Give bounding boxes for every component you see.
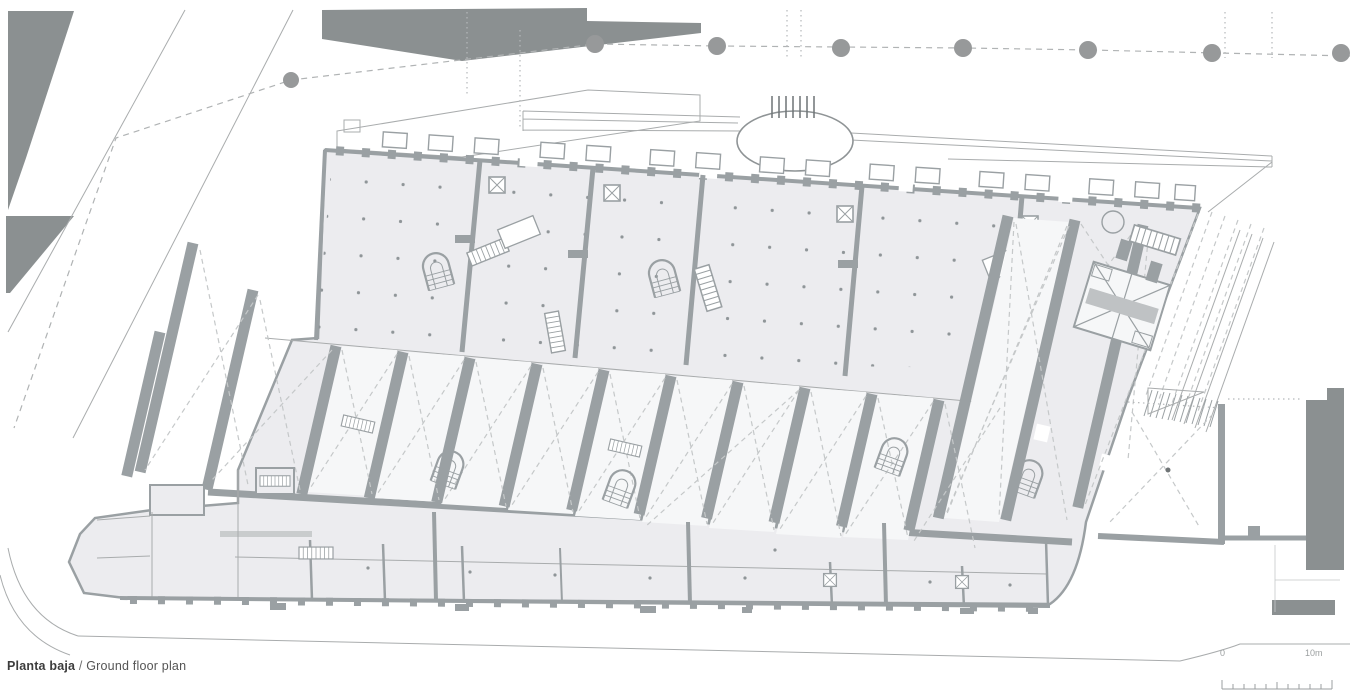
drawing-caption: Planta baja / Ground floor plan <box>7 659 186 673</box>
neighbour-block-southeast <box>1306 388 1344 570</box>
tree-icon <box>832 39 850 57</box>
neighbour-bar-southeast <box>1272 600 1335 615</box>
caption-title-en: Ground floor plan <box>86 659 186 673</box>
scale-bar <box>1222 680 1332 689</box>
tree-icon <box>708 37 726 55</box>
caption-title-es: Planta baja <box>7 659 75 673</box>
canopy-stair-hatch <box>772 96 814 118</box>
scale-max-label: 10m <box>1305 648 1323 658</box>
east-courtyard <box>1098 402 1306 544</box>
neighbour-block-north <box>322 8 701 61</box>
tree-icon <box>1079 41 1097 59</box>
scale-zero-label: 0 <box>1220 648 1225 658</box>
tree-icon <box>283 72 299 88</box>
canopy-blob <box>737 111 853 171</box>
tree-icon <box>1332 44 1350 62</box>
neighbour-block-west-upper <box>8 11 74 210</box>
floor-plan-drawing <box>0 0 1350 699</box>
caption-separator: / <box>75 659 86 673</box>
neighbour-block-west-lower <box>6 216 74 293</box>
tree-icon <box>586 35 604 53</box>
tree-icon <box>954 39 972 57</box>
tree-icon <box>1203 44 1221 62</box>
counter-bar <box>220 531 312 537</box>
building <box>69 128 1202 614</box>
scale-bar-labels: 0 10m <box>1210 648 1340 662</box>
